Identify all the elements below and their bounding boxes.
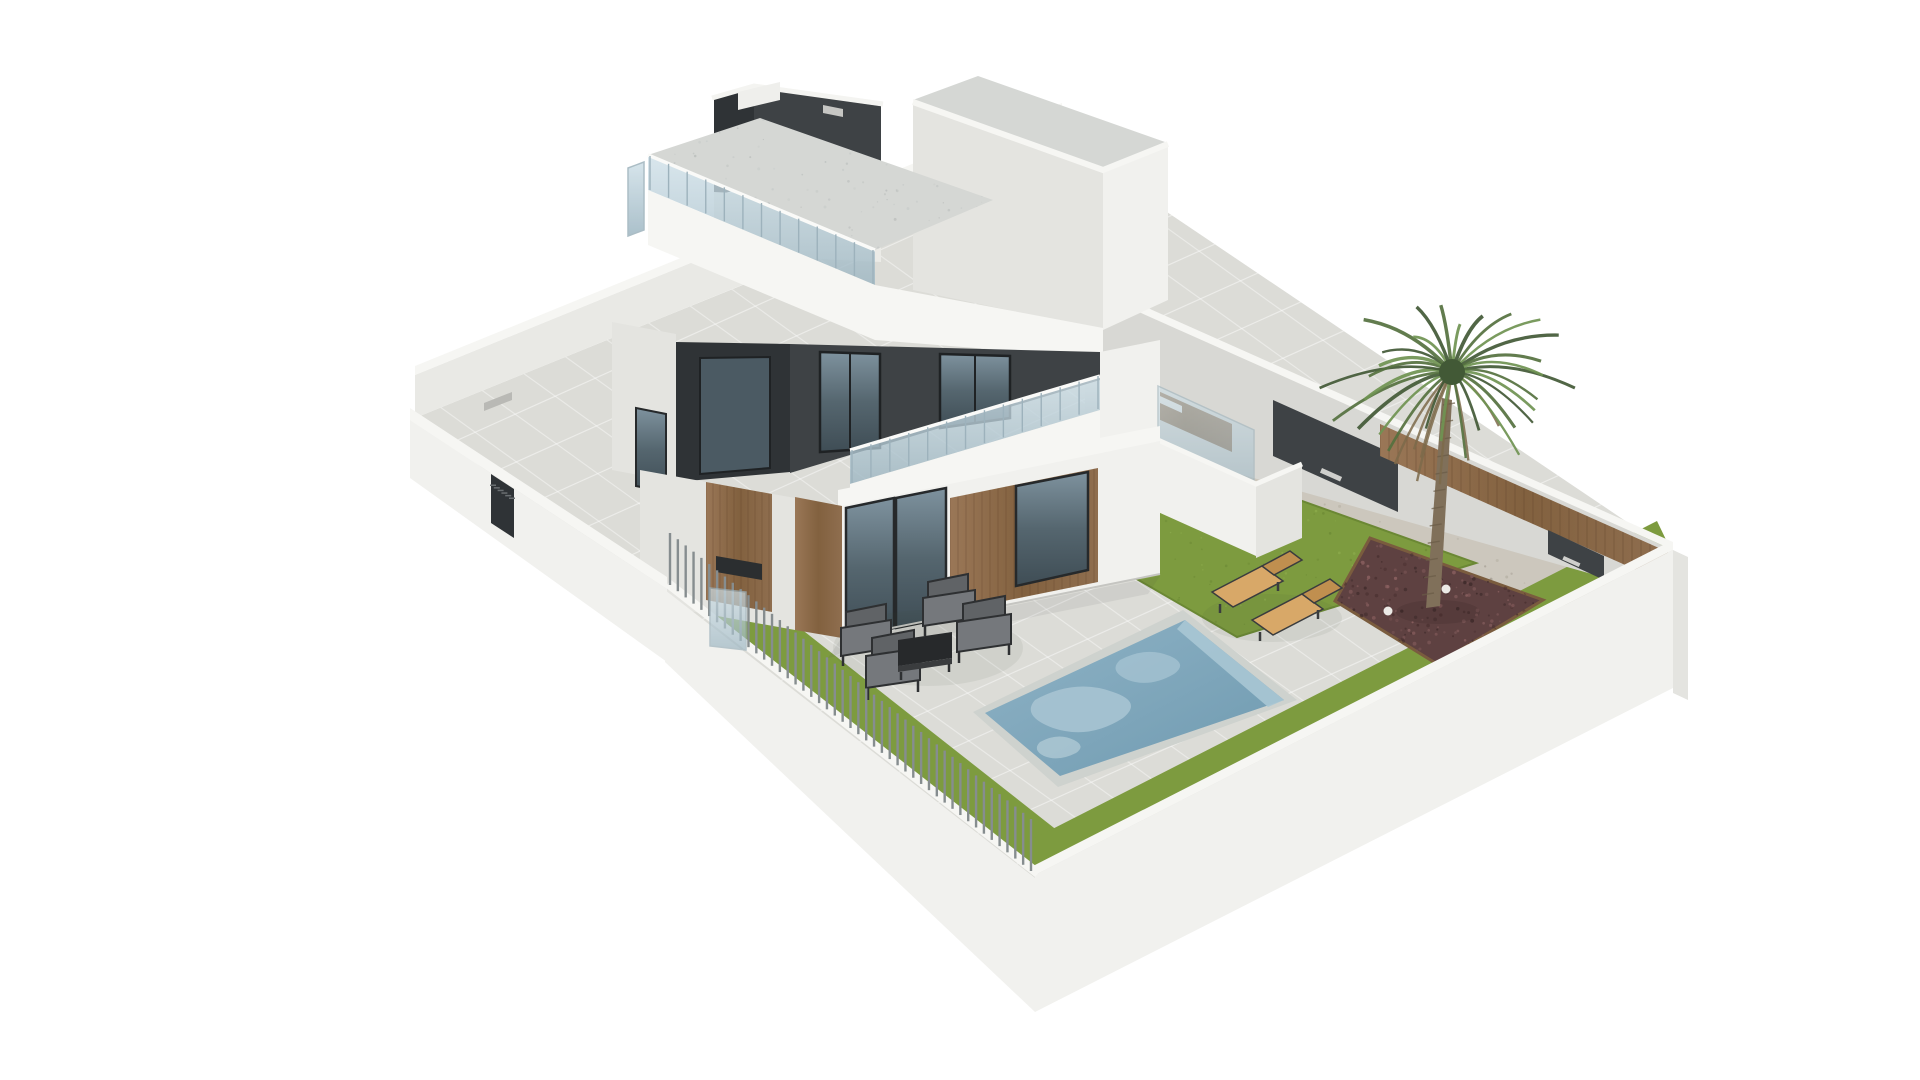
first-floor-window-left xyxy=(700,357,770,474)
top-block-front-right-face xyxy=(1103,146,1168,330)
garden-light-2 xyxy=(1442,585,1451,594)
architectural-render-canvas xyxy=(0,0,1920,1080)
terrace-corner-glass-panel xyxy=(628,162,644,236)
garden-light-1 xyxy=(1384,607,1393,616)
ground-floor-glass-slider-3 xyxy=(1016,472,1088,586)
villa-render xyxy=(0,0,1920,1080)
front-right-wall-end xyxy=(1673,550,1688,700)
entrance-chamfer-wood-pillar xyxy=(795,497,842,638)
corner-glass-windbreak xyxy=(710,588,746,650)
